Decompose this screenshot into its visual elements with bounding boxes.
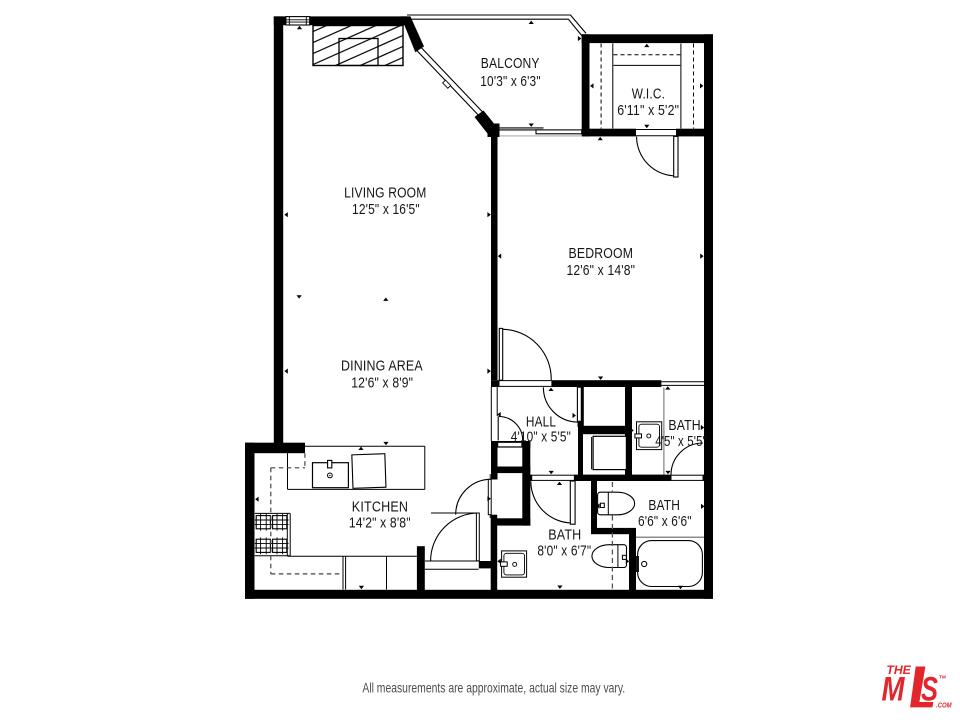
svg-text:6'6" x 6'6": 6'6" x 6'6" <box>638 514 692 530</box>
svg-text:BATH: BATH <box>668 418 701 434</box>
svg-text:8'0" x 6'7": 8'0" x 6'7" <box>537 544 591 560</box>
svg-text:4'5" x 5'5": 4'5" x 5'5" <box>655 434 707 450</box>
svg-text:12'5" x 16'5": 12'5" x 16'5" <box>352 202 420 218</box>
svg-text:4'10" x 5'5": 4'10" x 5'5" <box>511 429 571 445</box>
svg-text:10'3" x 6'3": 10'3" x 6'3" <box>480 74 540 90</box>
svg-text:BEDROOM: BEDROOM <box>569 246 634 262</box>
svg-text:LIVING ROOM: LIVING ROOM <box>344 186 426 202</box>
svg-text:HALL: HALL <box>526 414 556 430</box>
svg-text:M: M <box>882 671 906 709</box>
svg-text:All measurements are approxima: All measurements are approximate, actual… <box>362 680 625 695</box>
svg-text:W.I.C.: W.I.C. <box>632 86 665 102</box>
svg-text:BATH: BATH <box>648 498 680 514</box>
svg-text:14'2" x 8'8": 14'2" x 8'8" <box>349 516 411 532</box>
svg-text:12'6" x 8'9": 12'6" x 8'9" <box>351 376 413 392</box>
svg-text:BALCONY: BALCONY <box>481 56 540 72</box>
svg-text:BATH: BATH <box>548 527 581 543</box>
svg-text:DINING AREA: DINING AREA <box>341 359 423 375</box>
svg-text:KITCHEN: KITCHEN <box>352 499 408 515</box>
svg-text:TM: TM <box>939 675 946 681</box>
svg-text:6'11" x 5'2": 6'11" x 5'2" <box>617 103 679 119</box>
svg-text:12'6" x 14'8": 12'6" x 14'8" <box>566 263 635 279</box>
svg-text:.COM: .COM <box>936 702 952 709</box>
